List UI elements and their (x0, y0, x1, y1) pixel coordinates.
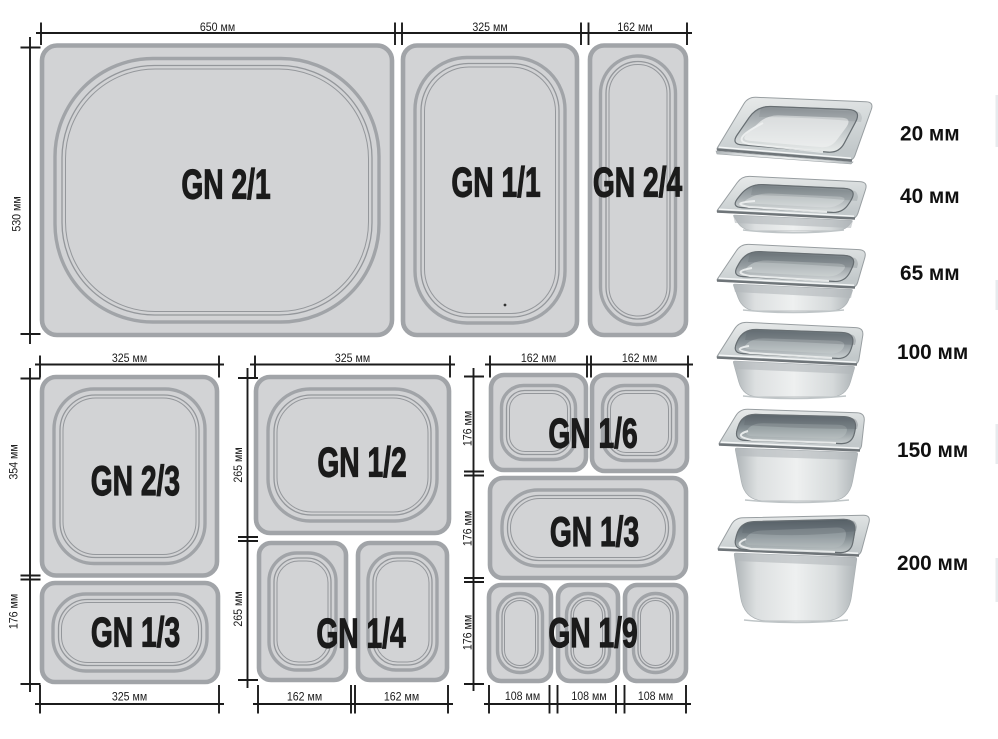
svg-text:162 мм: 162 мм (617, 21, 652, 34)
svg-text:530 мм: 530 мм (11, 196, 24, 231)
svg-text:325 мм: 325 мм (472, 21, 507, 34)
svg-text:40 мм: 40 мм (900, 185, 960, 208)
svg-text:162 мм: 162 мм (287, 691, 322, 704)
svg-text:100 мм: 100 мм (897, 341, 968, 364)
svg-text:108 мм: 108 мм (505, 690, 540, 703)
svg-text:325 мм: 325 мм (112, 352, 147, 365)
svg-text:GN 1/4: GN 1/4 (316, 610, 406, 657)
svg-text:650 мм: 650 мм (200, 21, 235, 34)
svg-text:GN 1/6: GN 1/6 (548, 410, 637, 457)
svg-text:265 мм: 265 мм (233, 591, 246, 626)
svg-text:162 мм: 162 мм (384, 691, 419, 704)
svg-text:176 мм: 176 мм (462, 411, 475, 446)
svg-text:20 мм: 20 мм (900, 123, 960, 146)
svg-text:GN 1/2: GN 1/2 (317, 439, 406, 486)
svg-text:176 мм: 176 мм (462, 511, 475, 546)
svg-text:GN 1/9: GN 1/9 (548, 610, 637, 657)
svg-text:265 мм: 265 мм (233, 447, 246, 482)
svg-text:GN 1/1: GN 1/1 (451, 159, 540, 206)
svg-text:GN 2/4: GN 2/4 (593, 159, 683, 206)
svg-text:150 мм: 150 мм (897, 439, 968, 462)
svg-text:162 мм: 162 мм (521, 352, 556, 365)
svg-text:GN 1/3: GN 1/3 (550, 508, 639, 555)
svg-text:162 мм: 162 мм (622, 352, 657, 365)
svg-text:GN 2/1: GN 2/1 (181, 161, 270, 208)
svg-text:108 мм: 108 мм (638, 690, 673, 703)
svg-text:GN 2/3: GN 2/3 (91, 457, 180, 504)
svg-text:176 мм: 176 мм (462, 615, 475, 650)
svg-text:200 мм: 200 мм (897, 552, 968, 575)
svg-text:325 мм: 325 мм (112, 691, 147, 704)
svg-text:GN 1/3: GN 1/3 (91, 609, 180, 656)
svg-text:325 мм: 325 мм (335, 352, 370, 365)
svg-text:65 мм: 65 мм (900, 262, 960, 285)
svg-text:176 мм: 176 мм (8, 594, 21, 629)
svg-text:108 мм: 108 мм (571, 690, 606, 703)
svg-text:354 мм: 354 мм (8, 444, 21, 479)
